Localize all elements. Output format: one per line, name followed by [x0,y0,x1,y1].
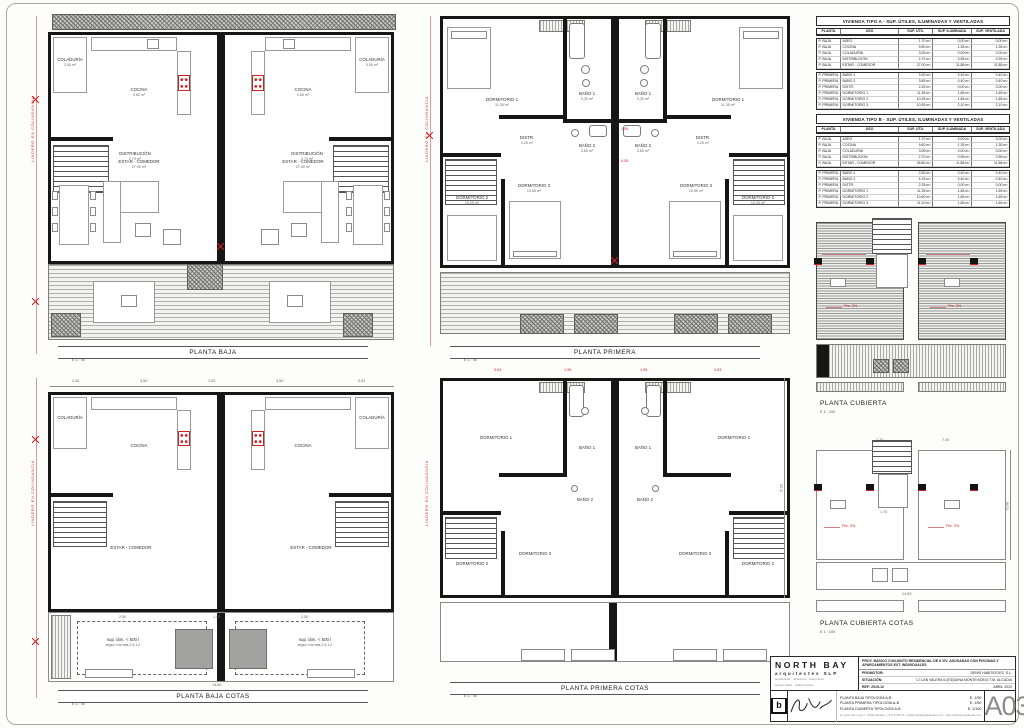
patio-outline: sup. lám. < 500 lsegún normas 2.5.1.2 su… [48,612,394,682]
title-block-bottom: b PLANTA BAJA TIPOLOGÍA A-B E: 1/50 PLAN… [771,691,1015,722]
table-header-cell: PLANTA [817,29,841,35]
roof-marker-icon [970,258,978,265]
interior-wall [443,153,501,157]
surface-table-tipo-a: VIVIENDA TIPO A - SUP. ÚTILES, ILUMINADA… [816,16,1010,110]
building-outline: DORMITORIO 1 DORMITORIO 1 BAÑO 1 BAÑO 1 … [440,378,790,598]
roof-outline [918,450,1006,560]
firm-subtitle: arquitectes SLP [775,671,854,676]
planter [873,359,889,373]
planter [728,314,772,334]
section-marker-icon [426,132,433,139]
signature-box [788,691,837,722]
firm-name: NORTH BAY [775,660,854,670]
room-label-distr: DISTR.2.25 m² [505,135,549,146]
room-label-cocina: COCINA9.80 m² [117,87,161,98]
coffee-table [291,223,307,237]
armchair [261,229,279,245]
stairs [53,501,107,547]
room-label-estar: ESTAR - COMEDOR [271,545,351,550]
slope-note: Pte. 2% [946,524,959,528]
table-row: P. PRIMERADORMITORIO 311.10 m²1.65 m²1.6… [817,201,1009,207]
table-cell: 10.55 m² [899,103,933,109]
dimension-line [784,378,785,598]
interior-wall [501,531,505,595]
building-outline: BAÑO 13.30 m² DORMITORIO 111.35 m² DISTR… [440,16,790,268]
interior-wall [663,115,731,119]
roof-marker-icon [814,258,822,265]
red-dimension: 3.63 [714,368,721,372]
roof-vent [830,500,846,509]
plan-scale: E 1 : 100 [820,410,835,414]
planter-outline [723,649,767,661]
room-label-coladuria: COLADURÍA [353,415,391,420]
table-group: P. BAJAASEO1.70 m²0.00 m²0.00 m²P. BAJAC… [816,38,1010,70]
pergola-outline [918,600,1006,612]
room-label-dorm1: DORMITORIO 1 [461,435,531,440]
section-marker-icon [32,436,39,443]
toilet [641,407,649,415]
pergola-outline [816,600,904,612]
roof-vent [944,278,960,287]
kitchen-counter [91,397,177,410]
dimension: 1.00 [208,379,215,383]
chair [384,191,390,200]
terrace-deck [48,264,394,340]
firm-contact-footer: av. pere mas i reus 7 · 07400 alcúdia · … [840,714,981,717]
table-cell: 11.88 m² [933,63,972,69]
surface-table-tipo-b: VIVIENDA TIPO B - SUP. ÚTILES, ILUMINADA… [816,114,1010,208]
boundary-label: LINDERO EN COLINDANCIA [30,96,35,162]
pillow [743,31,779,39]
pool-note: sup. lám. < 500 lsegún normas 2.5.1.2 [83,637,163,648]
interior-wall [663,19,667,115]
dimension: 14.80 [212,683,222,687]
plan-scale: E 1 : 100 [820,630,835,634]
room-label-cocina: COCINA [281,443,325,448]
interior-wall [499,115,567,119]
red-annotation-line [928,527,944,528]
boundary-line [430,16,431,346]
plan-title: PLANTA CUBIERTA COTAS [820,620,914,627]
table-header-box: PLANTAUSOSUP. ÚTILSUP. ILUMINADASUP. VEN… [816,28,1010,36]
interior-wall [725,531,729,595]
planter-outline [892,568,908,582]
ref-row: REF: 2019-12 ABRIL 2020 [859,684,1015,690]
chair [90,223,96,232]
roof-marker-icon [866,258,874,265]
table-cell: P. BAJA [817,63,841,69]
dimension: 7.40 [942,438,949,442]
roof-marker-icon [866,484,874,491]
dimension: 1.70 [880,510,887,514]
pillow [451,31,487,39]
table-title: VIVIENDA TIPO A - SUP. ÚTILES, ILUMINADA… [816,16,1010,26]
boundary-label: LINDERO EN COLINDANCIA [30,460,35,526]
laundry-closet [53,397,87,449]
party-wall [611,19,619,265]
drawing-list: PLANTA BAJA TIPOLOGÍA A-B E: 1/50 PLANTA… [837,691,984,722]
promoter-value: DENIS HABITATGES, S.L. [896,671,1012,675]
table-group: P. PRIMERABAÑO 13.30 m²0.40 m²0.40 m²P. … [816,72,1010,110]
table-cell: ESTAR - COMEDOR [841,161,899,167]
firm-logo: b [771,691,788,722]
roof-slab [918,222,1006,340]
interior-wall [663,381,667,473]
interior-wall [51,493,113,497]
party-wall [611,381,619,595]
interior-wall [563,119,615,123]
roof-marker-icon [970,484,978,491]
table-cell: 27.00 m² [899,63,933,69]
sofa [103,181,121,243]
table-cell: P. PRIMERA [817,201,841,207]
dimension: 2.50 [119,615,126,619]
bathtub [589,125,607,137]
dimension: 3.50 [140,379,147,383]
room-label-dorm3: DORMITORIO 3 [505,551,565,556]
laundry-closet [355,397,389,449]
dimension: 2.50 [301,615,308,619]
washbasin [640,79,648,87]
plan-title: PLANTA CUBIERTA [820,400,887,407]
interior-wall [729,511,787,515]
chair [52,207,58,216]
dimension: 14.80 [902,592,912,596]
room-label-cocina: COCINA9.80 m² [281,87,325,98]
outdoor-table [121,295,137,307]
drawing-row: PLANTA CUBIERTA TIPOLOGÍA A-B E: 1/100 [840,707,981,712]
room-label-bano2: BAÑO 23.65 m² [565,143,609,154]
pillow [673,251,717,257]
section-marker-icon [32,638,39,645]
table-cell: 1.65 m² [933,201,972,207]
room-label-dorm2: DORMITORIO 2 [445,561,499,566]
slope-note: Pte. 2% [842,524,855,528]
drawing-sheet: LINDERO EN COLINDANCIA COLADURÍA3.05 m² … [0,0,1024,728]
pool [175,629,213,669]
room-label-estar: ESTAR - COMEDOR27.00 m² [109,159,169,170]
table-header-box: PLANTAUSOSUP. ÚTILSUP. ILUMINADASUP. VEN… [816,126,1010,134]
washbasin [651,129,659,137]
planter [893,359,909,373]
interior-wall [663,473,731,477]
planter-outline [673,649,717,661]
planter [51,313,81,337]
red-annotation-line [826,307,842,308]
toilet [581,407,589,415]
planter [187,264,223,290]
table-header-cell: USO [841,127,899,133]
terrace-deck [816,344,1006,378]
planter [674,314,718,334]
interior-wall [499,473,567,477]
red-dimension: 4.05 [621,159,628,163]
section-marker-icon [32,96,39,103]
plan-planta-primera-cotas: LINDERO EN COLINDANCIA 3.63 1.95 1.95 3.… [424,366,792,706]
pergola [918,382,1006,392]
hob-icon [178,75,190,91]
table-cell: DORMITORIO 3 [841,201,899,207]
armchair [163,229,181,245]
interior-wall [329,493,391,497]
red-annotation-line [930,307,946,308]
slope-note: Pte. 2% [948,304,961,308]
table-cell: 11.88 m² [933,161,972,167]
toilet [640,65,649,74]
interior-wall [615,119,667,123]
roof-marker-icon [918,258,926,265]
table-header-cell: SUP. ÚTIL [899,127,933,133]
red-annotation-line [824,527,840,528]
nb-logo-icon: b [771,698,787,714]
bed [447,215,497,261]
room-label-distr: DISTR.2.25 m² [681,135,725,146]
firm-block: NORTH BAY arquitectes SLP arquitectura ·… [771,657,859,690]
chair [384,223,390,232]
plan-planta-cubierta-cotas: 1.70 7.40 1.70 Pte. 2% Pte. 2% 6.08 14.8… [814,438,1014,638]
plan-scale: E 1 : 50 [72,358,85,362]
dimension: 6.08 [1006,502,1010,509]
roof-marker-icon [814,484,822,491]
garden-strip [52,14,396,30]
outdoor-table [287,295,303,307]
table-cell: 2.10 m² [972,103,1009,109]
kitchen-counter [91,37,177,51]
planter-outline [307,669,355,678]
room-label-bano1: BAÑO 13.30 m² [623,91,663,102]
room-label-coladuria: COLADURÍA3.05 m² [353,57,391,68]
ref-value: REF: 2019-12 [862,685,896,689]
planter-outline [872,568,888,582]
dimension: 0.51 [358,379,365,383]
hob-icon [252,75,264,91]
room-label-dorm3: DORMITORIO 310.55 m² [665,183,727,194]
table-cell: P. PRIMERA [817,103,841,109]
pool [229,629,267,669]
stair-landing [878,474,908,508]
dimension-line [1010,450,1011,560]
plan-scale: E 1 : 50 [72,702,85,706]
section-marker-icon [611,257,618,264]
chair [346,207,352,216]
dimension: 3.50 [276,379,283,383]
dining-table [59,185,89,245]
table-header-cell: SUP. ILUMINADA [933,29,972,35]
sink-icon [147,39,159,49]
chair [346,191,352,200]
plan-scale: E 1 : 50 [464,358,477,362]
plan-scale: E 1 : 50 [464,694,477,698]
plan-planta-cubierta: Pte. 2% Pte. 2% PLANTA CUBIERTA E 1 : 10… [814,212,1014,418]
date-value: ABRIL 2020 [896,685,1012,689]
signature-icon [788,695,836,717]
location-row: SITUACIÓN: C/ CAN VALERA 6 (ESQUINA MONT… [859,677,1015,684]
dimension-line [50,386,394,387]
red-dimension: 3.63 [494,368,501,372]
project-title: PROY. BÁSICO CONJUNTO RESIDENCIAL DE 6 V… [859,657,1015,670]
table-header-cell: SUP. VENTILADA [972,127,1009,133]
sink-icon [283,39,295,49]
boundary-label: LINDERO EN COLINDANCIA [424,460,429,526]
plan-title: PLANTA PRIMERA [450,346,760,359]
hob-icon [178,431,190,446]
chair [52,191,58,200]
table-row: P. BAJAESTAR - COMEDOR26.80 m²11.88 m²11… [817,161,1009,167]
kitchen-counter [265,397,351,410]
firm-tagline: arquitectura · urbanisme · interiorisme [775,677,854,681]
chair [346,223,352,232]
stairs [335,501,389,547]
room-label-bano1: BAÑO 1 [623,445,663,450]
table-group: P. PRIMERABAÑO 13.30 m²0.40 m²0.40 m²P. … [816,170,1010,208]
terrace-outline [816,562,1006,590]
table-cell: P. BAJA [817,161,841,167]
pergola [816,382,904,392]
table-row: P. PRIMERADORMITORIO 310.55 m²2.10 m²2.1… [817,103,1009,109]
room-label-bano2: BAÑO 23.65 m² [621,143,665,154]
washbasin [582,79,590,87]
party-wall [217,35,225,261]
table-header-cell: SUP. ILUMINADA [933,127,972,133]
coffee-table [135,223,151,237]
location-label: SITUACIÓN: [862,678,896,682]
dimension: 1.00 [213,615,220,619]
interior-wall [443,511,501,515]
chair [52,223,58,232]
roof-vent [944,500,960,509]
shower [569,23,585,59]
roof-vent [830,278,846,287]
room-label-coladuria: COLADURÍA [51,415,89,420]
room-label-estar: ESTAR - COMEDOR [91,545,171,550]
toilet [581,65,590,74]
sofa [321,181,339,243]
interior-wall [329,137,391,141]
table-header-cell: SUP. ÚTIL [899,29,933,35]
party-wall [217,613,225,681]
pillow [513,251,557,257]
room-label-dorm2: DORMITORIO 2 [731,561,785,566]
project-info: PROY. BÁSICO CONJUNTO RESIDENCIAL DE 6 V… [859,657,1015,690]
sheet-number: A03 [984,691,1024,722]
interior-wall [563,381,567,473]
chair [90,207,96,216]
slope-note: Pte. 2% [844,304,857,308]
room-label-estar: ESTAR - COMEDOR27.00 m² [273,159,333,170]
boundary-label: LINDERO EN COLINDANCIA [424,96,429,162]
table-header: PLANTAUSOSUP. ÚTILSUP. ILUMINADASUP. VEN… [817,29,1009,35]
room-label-dorm1: DORMITORIO 111.35 m² [467,97,537,108]
table-row: P. BAJAESTAR - COMEDOR27.00 m²11.88 m²11… [817,63,1009,69]
stairs [445,517,497,559]
kitchen-counter [265,37,351,51]
red-dimension: 1.95 [640,368,647,372]
table-header-cell: PLANTA [817,127,841,133]
section-marker-icon [32,298,39,305]
bed [733,215,783,261]
planter [520,314,564,334]
red-annotation-line [822,254,866,255]
plan-planta-baja-cotas: LINDERO EN COLINDANCIA 2.40 3.50 1.00 3.… [28,376,396,710]
plan-title: PLANTA BAJA [58,346,368,359]
room-label-dorm1: DORMITORIO 1 [699,435,769,440]
room-label-dorm3: DORMITORIO 3 [665,551,725,556]
planter-outline [521,649,565,661]
room-label-cocina: COCINA [117,443,161,448]
room-label-dorm2: DORMITORIO 210.25 m² [731,195,785,206]
roof-marker-icon [918,484,926,491]
stairwell [872,440,912,474]
planter-outline [85,669,133,678]
room-label-coladuria: COLADURÍA3.05 m² [51,57,89,68]
plan-title: PLANTA BAJA COTAS [58,690,368,703]
stairs [733,517,785,559]
room-label-bano2: BAÑO 2 [563,497,607,502]
plan-planta-baja: LINDERO EN COLINDANCIA COLADURÍA3.05 m² … [28,12,396,364]
promoter-row: PROMOTOR: DENIS HABITATGES, S.L. [859,670,1015,677]
red-dimension: 1.95 [621,127,628,131]
location-value: C/ CAN VALERA 6 (ESQUINA MONTEVIDEU) T.M… [896,678,1012,682]
red-dimension: 1.95 [564,368,571,372]
table-cell: 11.10 m² [899,201,933,207]
table-header-cell: SUP. VENTILADA [972,29,1009,35]
building-outline: COLADURÍA3.05 m² COCINA9.80 m² DISTRIBUC… [48,32,394,264]
planter-outline [571,649,615,661]
table-cell: 2.10 m² [933,103,972,109]
stairwell [872,218,912,254]
room-label-dorm2: DORMITORIO 210.25 m² [445,195,499,206]
room-label-bano1: BAÑO 13.30 m² [567,91,607,102]
table-cell: 1.65 m² [972,201,1009,207]
planter [574,314,618,334]
table-cell: DORMITORIO 3 [841,103,899,109]
room-label-dorm3: DORMITORIO 310.55 m² [503,183,565,194]
table-cell: ESTAR - COMEDOR [841,63,899,69]
dimension: 5.95 [780,484,784,491]
party-wall [217,395,225,609]
interior-wall [729,153,787,157]
room-label-dorm1: DORMITORIO 111.35 m² [693,97,763,108]
dining-table [353,185,383,245]
table-group: P. BAJAASEO1.70 m²0.00 m²0.00 m²P. BAJAC… [816,136,1010,168]
title-block-top: NORTH BAY arquitectes SLP arquitectura ·… [771,657,1015,691]
planter [817,345,829,377]
table-cell: 26.80 m² [899,161,933,167]
planter [343,313,373,337]
terrace-outline [440,602,790,662]
plan-planta-primera: LINDERO EN COLINDANCIA BAÑO 13.30 m² DOR… [424,12,792,364]
washbasin [652,485,659,492]
building-outline: COLADURÍA COCINA ESTAR - COMEDOR COLADUR… [48,392,394,612]
room-label-bano2: BAÑO 2 [623,497,667,502]
room-label-bano1: BAÑO 1 [567,445,607,450]
washbasin [571,129,579,137]
chair [90,191,96,200]
boundary-line [36,378,37,698]
table-title: VIVIENDA TIPO B - SUP. ÚTILES, ILUMINADA… [816,114,1010,124]
table-header-cell: USO [841,29,899,35]
chair [384,207,390,216]
hob-icon [252,431,264,446]
title-block: NORTH BAY arquitectes SLP arquitectura ·… [770,656,1016,722]
washbasin [571,485,578,492]
red-annotation-line [926,254,970,255]
promoter-label: PROMOTOR: [862,671,896,675]
firm-partners: Ignacio Salas · Gabriel Sastre [775,683,854,687]
plan-title: PLANTA PRIMERA COTAS [450,682,760,695]
stair-landing [876,254,908,288]
dimension: 2.40 [72,379,79,383]
